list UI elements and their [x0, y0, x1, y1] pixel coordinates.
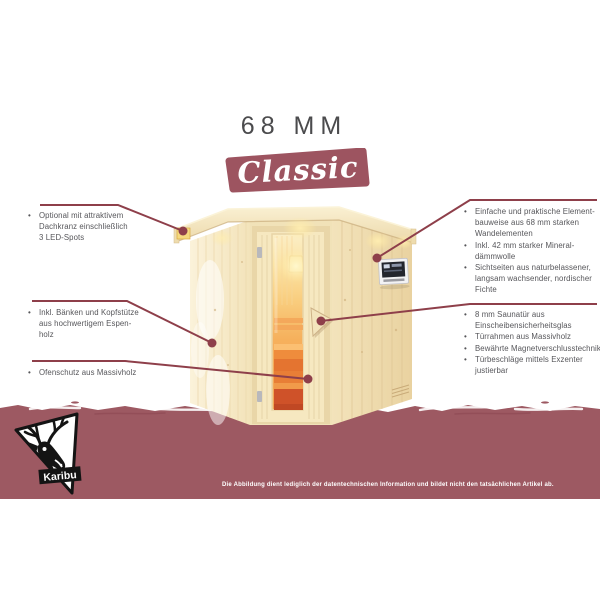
feature-lines: Bewährte Magnetverschlusstechnik: [475, 343, 600, 354]
feature-block-oven-guard: •Ofenschutz aus Massivholz: [28, 367, 188, 378]
feature-line: Sichtseiten aus naturbelassener,: [475, 262, 592, 273]
bullet-glyph: •: [464, 240, 475, 251]
sauna-illustration: [165, 195, 435, 440]
feature-lines: Inkl. Bänken und Kopfstützeaus hochwerti…: [39, 307, 139, 341]
feature-item: •Bewährte Magnetverschlusstechnik: [464, 343, 600, 354]
feature-lines: Ofenschutz aus Massivholz: [39, 367, 136, 378]
bullet-glyph: •: [464, 331, 475, 342]
feature-item: •Sichtseiten aus naturbelassener,langsam…: [464, 262, 600, 296]
interior-bench: [274, 344, 303, 350]
feature-lines: Einfache und praktische Element-bauweise…: [475, 206, 595, 240]
feature-line: Ofenschutz aus Massivholz: [39, 367, 136, 378]
feature-lines: Inkl. 42 mm starker Mineral-dämmwolle: [475, 240, 574, 262]
feature-line: bauweise aus 68 mm starken: [475, 217, 595, 228]
feature-item: •8 mm Saunatür ausEinscheibensicherheits…: [464, 309, 600, 331]
feature-line: 3 LED-Spots: [39, 232, 128, 243]
feature-line: Türbeschläge mittels Exzenter: [475, 354, 583, 365]
feature-line: Türrahmen aus Massivholz: [475, 331, 571, 342]
bullet-glyph: •: [464, 354, 475, 365]
brand-logo: Karibu: [8, 406, 100, 501]
feature-line: langsam wachsender, nordischer: [475, 273, 592, 284]
feature-line: dämmwolle: [475, 251, 574, 262]
feature-lines: Türbeschläge mittels Exzenterjustierbar: [475, 354, 583, 376]
feature-line: Inkl. Bänken und Kopfstütze: [39, 307, 139, 318]
wall-thickness-label: 68 MM: [0, 112, 594, 141]
series-banner: Classic: [224, 148, 372, 195]
feature-line: Inkl. 42 mm starker Mineral-: [475, 240, 574, 251]
feature-item: •Inkl. Bänken und Kopfstützeaus hochwert…: [28, 307, 188, 341]
bullet-glyph: •: [28, 307, 39, 318]
brand-wordmark: Karibu: [38, 466, 81, 484]
feature-line: holz: [39, 329, 139, 340]
control-panel-screen: [381, 261, 405, 277]
feature-block-door: •8 mm Saunatür ausEinscheibensicherheits…: [464, 309, 600, 376]
feature-item: •Optional mit attraktivemDachkranz einsc…: [28, 210, 188, 244]
feature-line: Wandelementen: [475, 228, 595, 239]
feature-lines: Türrahmen aus Massivholz: [475, 331, 571, 342]
feature-lines: Optional mit attraktivemDachkranz einsch…: [39, 210, 128, 244]
feature-line: Dachkranz einschließlich: [39, 221, 128, 232]
feature-line: justierbar: [475, 365, 583, 376]
bullet-glyph: •: [464, 343, 475, 354]
feature-lines: 8 mm Saunatür ausEinscheibensicherheitsg…: [475, 309, 572, 331]
feature-item: •Ofenschutz aus Massivholz: [28, 367, 188, 378]
feature-item: •Einfache und praktische Element-bauweis…: [464, 206, 600, 240]
series-name-text: Classic: [237, 150, 360, 190]
feature-line: Fichte: [475, 284, 592, 295]
feature-block-benches: •Inkl. Bänken und Kopfstützeaus hochwert…: [28, 307, 188, 341]
header: 68 MM: [0, 112, 594, 141]
feature-item: •Türrahmen aus Massivholz: [464, 331, 600, 342]
feature-line: Einfache und praktische Element-: [475, 206, 595, 217]
feature-line: Bewährte Magnetverschlusstechnik: [475, 343, 600, 354]
glass-reflection: [275, 238, 278, 333]
feature-block-led-spots: •Optional mit attraktivemDachkranz einsc…: [28, 210, 188, 244]
feature-line: 8 mm Saunatür aus: [475, 309, 572, 320]
bullet-glyph: •: [28, 367, 39, 378]
bullet-glyph: •: [464, 262, 475, 273]
feature-lines: Sichtseiten aus naturbelassener,langsam …: [475, 262, 592, 296]
feature-line: aus hochwertigem Espen-: [39, 318, 139, 329]
feature-line: Einscheibensicherheitsglas: [475, 320, 572, 331]
feature-block-elements: •Einfache und praktische Element-bauweis…: [464, 206, 600, 296]
bullet-glyph: •: [464, 309, 475, 320]
bullet-glyph: •: [28, 210, 39, 221]
feature-line: Optional mit attraktivem: [39, 210, 128, 221]
disclaimer-text: Die Abbildung dient lediglich der datent…: [222, 482, 600, 488]
feature-item: •Türbeschläge mittels Exzenterjustierbar: [464, 354, 600, 376]
bullet-glyph: •: [464, 206, 475, 217]
feature-item: •Inkl. 42 mm starker Mineral-dämmwolle: [464, 240, 600, 262]
